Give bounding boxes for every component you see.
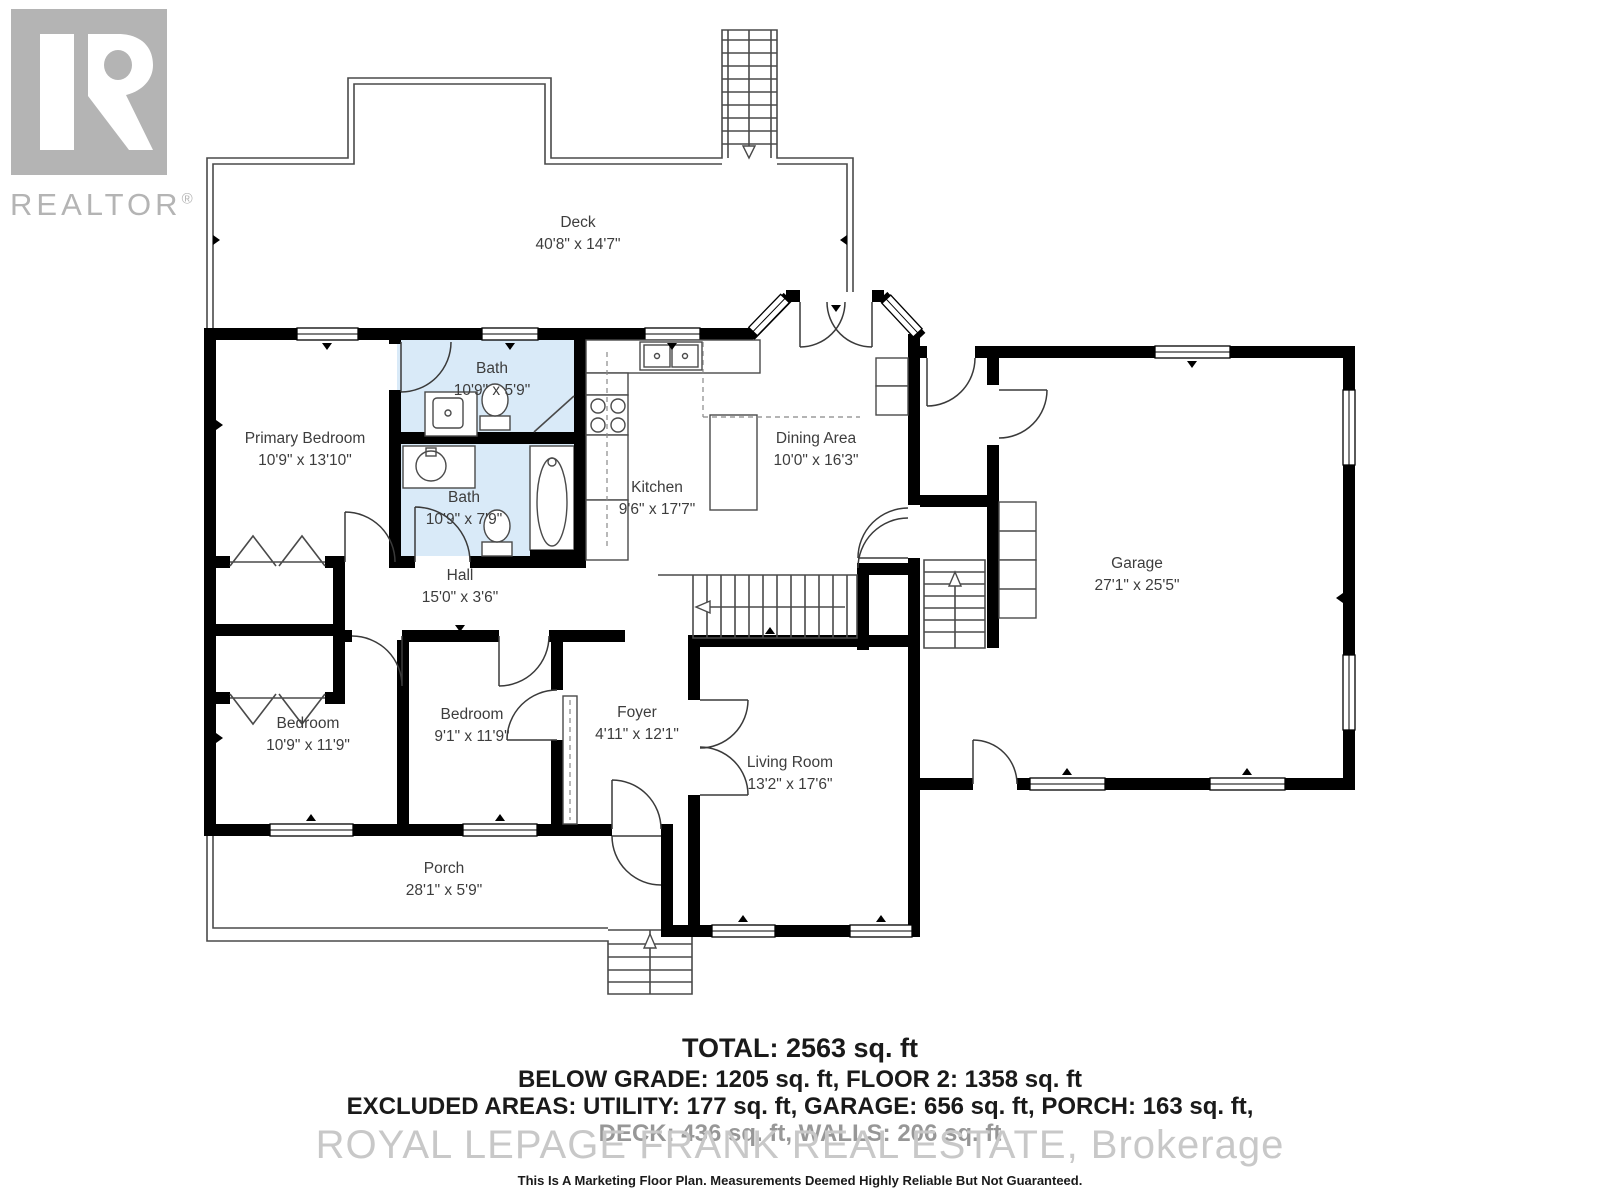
main-stairs bbox=[658, 575, 857, 638]
room-dims: 4'11" x 12'1" bbox=[595, 724, 679, 746]
bay-window-icon bbox=[749, 294, 790, 335]
porch-steps-up-arrow-icon bbox=[644, 934, 656, 948]
room-dims: 10'9" x 5'9" bbox=[454, 380, 530, 402]
deck-outline bbox=[207, 30, 853, 330]
bay-window-icon bbox=[882, 295, 922, 337]
garage-stairs-up-arrow-icon bbox=[949, 572, 961, 586]
kitchen-island bbox=[710, 415, 757, 510]
foyer-closet bbox=[563, 696, 577, 824]
garage-stairs bbox=[924, 560, 985, 648]
room-label-bedroom-right: Bedroom 9'1" x 11'9" bbox=[434, 704, 509, 748]
walls bbox=[204, 290, 1355, 937]
brokerage-watermark: ROYAL LEPAGE FRANK REAL ESTATE, Brokerag… bbox=[0, 1122, 1600, 1168]
room-name: Primary Bedroom bbox=[245, 428, 366, 450]
room-label-kitchen: Kitchen 9'6" x 17'7" bbox=[619, 477, 695, 521]
room-dims: 15'0" x 3'6" bbox=[422, 587, 498, 609]
room-dims: 13'2" x 17'6" bbox=[747, 774, 833, 796]
room-label-foyer: Foyer 4'11" x 12'1" bbox=[595, 702, 679, 746]
room-dims: 9'6" x 17'7" bbox=[619, 499, 695, 521]
deck-stairs-down-arrow-icon bbox=[743, 146, 755, 158]
room-dims: 10'9" x 13'10" bbox=[245, 450, 366, 472]
window-icon bbox=[297, 328, 358, 340]
window-icon bbox=[712, 925, 775, 937]
room-name: Foyer bbox=[595, 702, 679, 724]
room-name: Bath bbox=[426, 487, 502, 509]
room-name: Dining Area bbox=[773, 428, 858, 450]
room-label-bedroom-left: Bedroom 10'9" x 11'9" bbox=[266, 713, 350, 757]
floor-plan-page: REALTOR® bbox=[0, 0, 1600, 1200]
window-icon bbox=[645, 328, 700, 340]
room-label-dining-area: Dining Area 10'0" x 16'3" bbox=[773, 428, 858, 472]
window-icon bbox=[1343, 655, 1355, 730]
room-name: Hall bbox=[422, 565, 498, 587]
deck-stairs bbox=[722, 30, 777, 158]
room-label-porch: Porch 28'1" x 5'9" bbox=[406, 858, 482, 902]
floor-plan-drawing bbox=[0, 0, 1600, 1200]
room-label-living-room: Living Room 13'2" x 17'6" bbox=[747, 752, 833, 796]
room-label-garage: Garage 27'1" x 25'5" bbox=[1094, 553, 1179, 597]
room-dims: 28'1" x 5'9" bbox=[406, 880, 482, 902]
window-icon bbox=[1210, 778, 1285, 790]
room-label-hall: Hall 15'0" x 3'6" bbox=[422, 565, 498, 609]
room-name: Bedroom bbox=[434, 704, 509, 726]
window-icon bbox=[1155, 346, 1230, 358]
room-label-bath-upper: Bath 10'9" x 5'9" bbox=[454, 358, 530, 402]
window-icon bbox=[850, 925, 912, 937]
summary-line3: EXCLUDED AREAS: UTILITY: 177 sq. ft, GAR… bbox=[0, 1093, 1600, 1121]
room-name: Porch bbox=[406, 858, 482, 880]
porch-steps bbox=[608, 930, 692, 994]
room-dims: 40'8" x 14'7" bbox=[535, 234, 620, 256]
disclaimer-text: This Is A Marketing Floor Plan. Measurem… bbox=[0, 1173, 1600, 1188]
room-name: Living Room bbox=[747, 752, 833, 774]
room-name: Bath bbox=[454, 358, 530, 380]
room-name: Bedroom bbox=[266, 713, 350, 735]
window-icon bbox=[463, 824, 537, 836]
room-label-bath-lower: Bath 10'9" x 7'9" bbox=[426, 487, 502, 531]
toilet-tank-icon bbox=[480, 416, 510, 430]
toilet-tank-icon bbox=[482, 542, 512, 556]
room-label-deck: Deck 40'8" x 14'7" bbox=[535, 212, 620, 256]
room-dims: 27'1" x 25'5" bbox=[1094, 575, 1179, 597]
room-label-primary-bedroom: Primary Bedroom 10'9" x 13'10" bbox=[245, 428, 366, 472]
stairs-down-arrow-icon bbox=[696, 601, 710, 613]
window-icon bbox=[1030, 778, 1105, 790]
window-icon bbox=[1343, 390, 1355, 465]
room-dims: 10'9" x 7'9" bbox=[426, 509, 502, 531]
summary-total: TOTAL: 2563 sq. ft bbox=[0, 1033, 1600, 1064]
room-name: Deck bbox=[535, 212, 620, 234]
summary-line2: BELOW GRADE: 1205 sq. ft, FLOOR 2: 1358 … bbox=[0, 1066, 1600, 1094]
room-dims: 10'0" x 16'3" bbox=[773, 450, 858, 472]
room-name: Garage bbox=[1094, 553, 1179, 575]
room-dims: 9'1" x 11'9" bbox=[434, 726, 509, 748]
room-name: Kitchen bbox=[619, 477, 695, 499]
room-dims: 10'9" x 11'9" bbox=[266, 735, 350, 757]
window-icon bbox=[270, 824, 353, 836]
window-icon bbox=[482, 328, 538, 340]
bathtub-icon bbox=[537, 458, 567, 546]
